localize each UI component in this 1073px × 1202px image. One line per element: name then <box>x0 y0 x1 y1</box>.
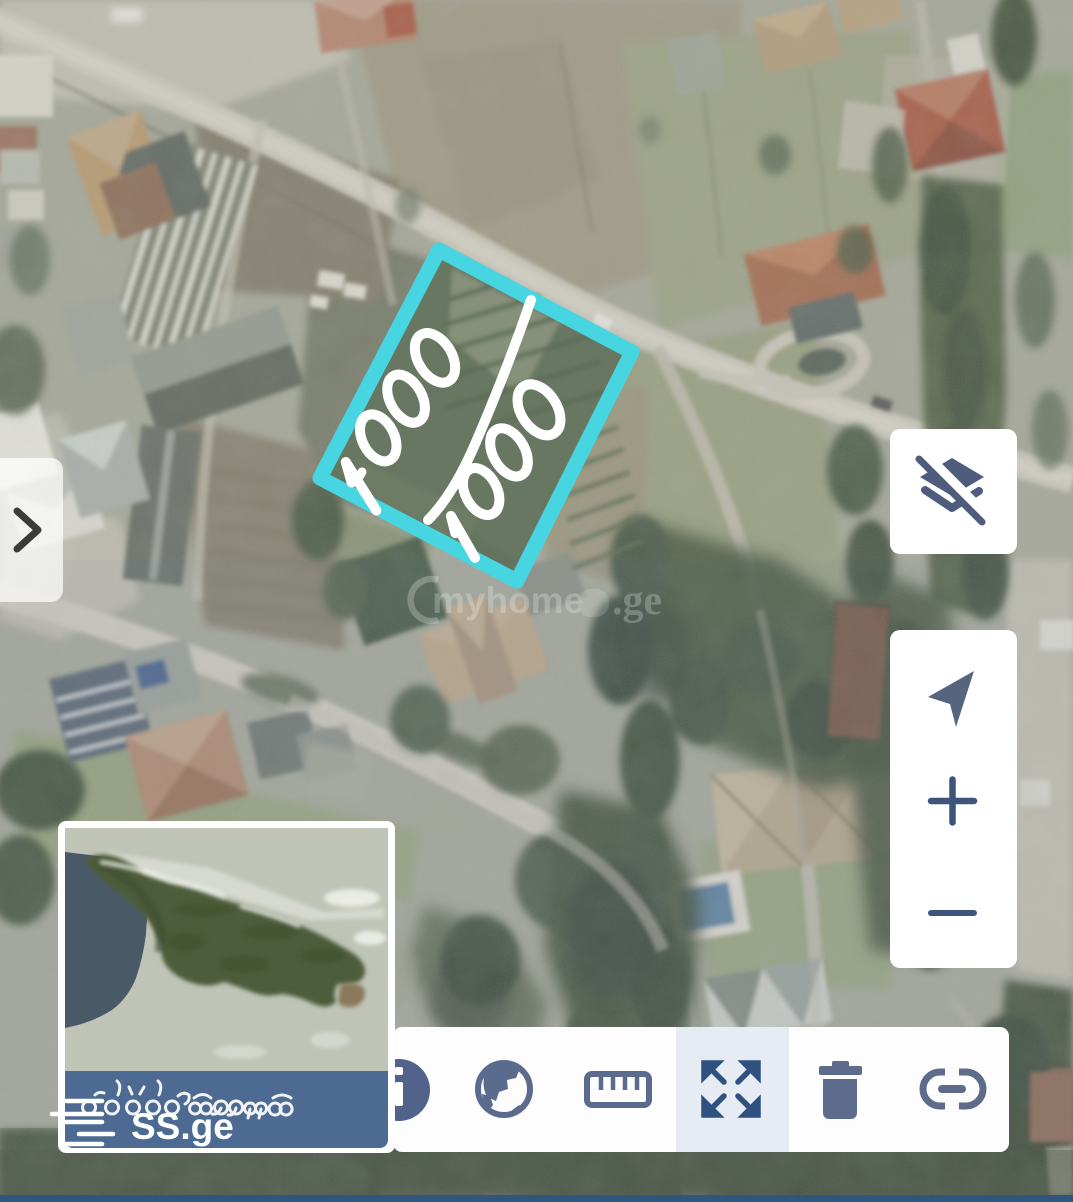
svg-text:SS.ge: SS.ge <box>131 1106 234 1147</box>
svg-text:.ge: .ge <box>612 578 662 624</box>
svg-text:myhome: myhome <box>432 580 584 621</box>
